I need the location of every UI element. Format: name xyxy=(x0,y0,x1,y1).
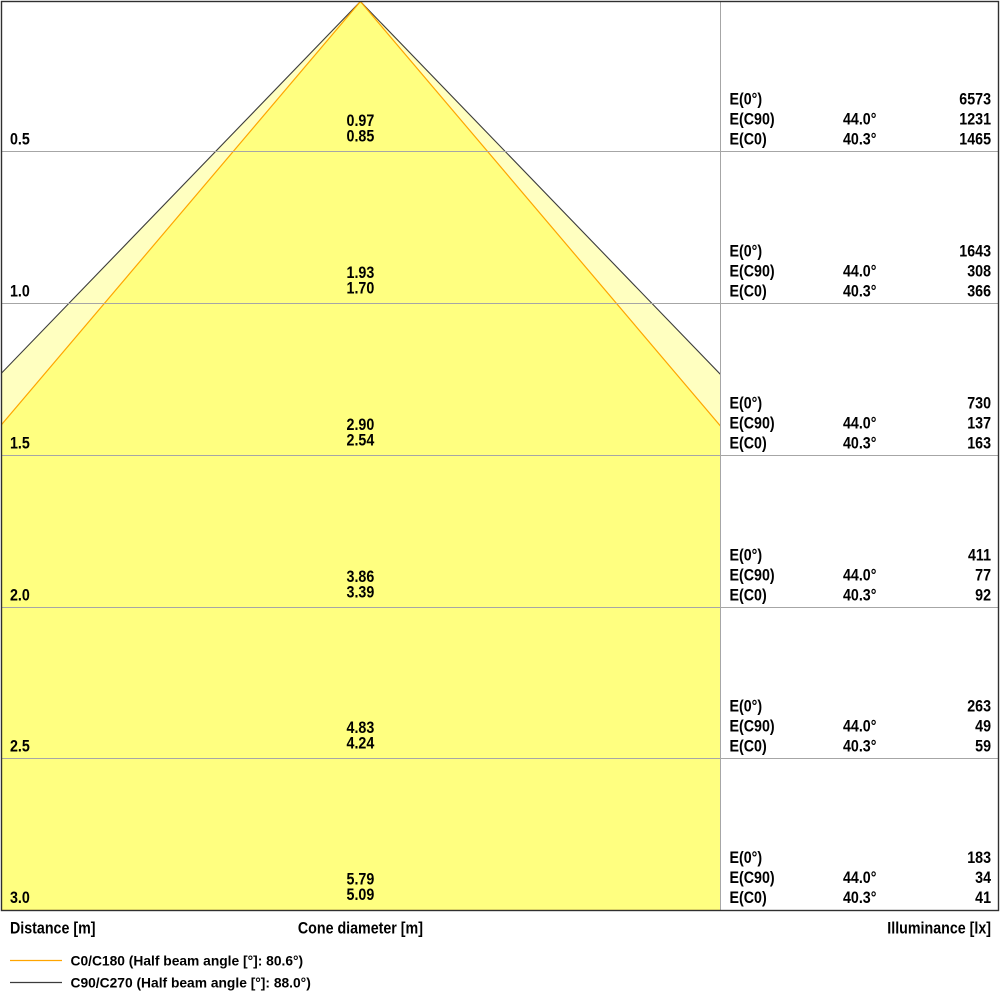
svg-text:1.0: 1.0 xyxy=(10,283,30,301)
svg-text:0.85: 0.85 xyxy=(347,128,375,146)
svg-text:77: 77 xyxy=(975,567,991,585)
svg-text:E(C90): E(C90) xyxy=(730,263,775,281)
svg-text:730: 730 xyxy=(967,394,991,412)
svg-text:44.0°: 44.0° xyxy=(843,869,876,887)
svg-text:E(C90): E(C90) xyxy=(730,415,775,433)
svg-text:E(C90): E(C90) xyxy=(730,869,775,887)
svg-text:137: 137 xyxy=(967,415,991,433)
svg-text:E(C0): E(C0) xyxy=(730,889,767,907)
svg-text:3.0: 3.0 xyxy=(10,889,30,907)
svg-text:1465: 1465 xyxy=(959,131,991,149)
svg-text:183: 183 xyxy=(967,849,991,867)
svg-text:1.70: 1.70 xyxy=(347,280,375,298)
svg-text:40.3°: 40.3° xyxy=(843,889,876,907)
svg-text:40.3°: 40.3° xyxy=(843,587,876,605)
svg-text:E(C90): E(C90) xyxy=(730,718,775,736)
svg-text:E(C0): E(C0) xyxy=(730,283,767,301)
svg-text:44.0°: 44.0° xyxy=(843,111,876,129)
svg-text:44.0°: 44.0° xyxy=(843,567,876,585)
svg-text:44.0°: 44.0° xyxy=(843,263,876,281)
svg-text:308: 308 xyxy=(967,263,991,281)
svg-text:263: 263 xyxy=(967,697,991,715)
svg-text:49: 49 xyxy=(975,718,991,736)
svg-text:E(C0): E(C0) xyxy=(730,587,767,605)
svg-text:5.09: 5.09 xyxy=(347,886,375,904)
svg-text:40.3°: 40.3° xyxy=(843,283,876,301)
svg-text:E(C90): E(C90) xyxy=(730,567,775,585)
svg-text:3.39: 3.39 xyxy=(347,584,375,602)
svg-text:1.5: 1.5 xyxy=(10,435,30,453)
svg-text:44.0°: 44.0° xyxy=(843,415,876,433)
svg-text:E(0°): E(0°) xyxy=(730,849,763,867)
svg-text:44.0°: 44.0° xyxy=(843,718,876,736)
svg-text:E(0°): E(0°) xyxy=(730,90,763,108)
svg-text:Cone diameter [m]: Cone diameter [m] xyxy=(298,920,423,938)
svg-text:2.5: 2.5 xyxy=(10,738,30,756)
svg-text:E(0°): E(0°) xyxy=(730,242,763,260)
svg-text:1231: 1231 xyxy=(959,111,991,129)
svg-text:E(C0): E(C0) xyxy=(730,131,767,149)
svg-text:Illuminance [lx]: Illuminance [lx] xyxy=(887,920,991,938)
svg-text:41: 41 xyxy=(975,889,991,907)
svg-text:92: 92 xyxy=(975,587,991,605)
svg-text:366: 366 xyxy=(967,283,991,301)
svg-text:40.3°: 40.3° xyxy=(843,738,876,756)
svg-text:E(0°): E(0°) xyxy=(730,546,763,564)
svg-text:2.0: 2.0 xyxy=(10,587,30,605)
svg-text:E(C0): E(C0) xyxy=(730,738,767,756)
svg-text:2.54: 2.54 xyxy=(347,432,375,450)
svg-text:59: 59 xyxy=(975,738,991,756)
svg-text:40.3°: 40.3° xyxy=(843,435,876,453)
svg-text:6573: 6573 xyxy=(959,90,991,108)
svg-text:411: 411 xyxy=(968,546,991,564)
svg-text:163: 163 xyxy=(967,435,991,453)
svg-text:40.3°: 40.3° xyxy=(843,131,876,149)
svg-text:E(C0): E(C0) xyxy=(730,435,767,453)
svg-text:E(0°): E(0°) xyxy=(730,697,763,715)
svg-text:0.5: 0.5 xyxy=(10,131,30,149)
svg-text:E(0°): E(0°) xyxy=(730,394,763,412)
svg-text:1643: 1643 xyxy=(959,242,991,260)
svg-text:C0/C180 (Half beam angle [°]:: C0/C180 (Half beam angle [°]: 80.6°) xyxy=(71,953,304,968)
svg-text:4.24: 4.24 xyxy=(347,735,375,753)
svg-text:34: 34 xyxy=(975,869,991,887)
svg-text:C90/C270 (Half beam angle [°]:: C90/C270 (Half beam angle [°]: 88.0°) xyxy=(71,975,311,990)
svg-text:E(C90): E(C90) xyxy=(730,111,775,129)
svg-text:Distance [m]: Distance [m] xyxy=(10,920,96,938)
